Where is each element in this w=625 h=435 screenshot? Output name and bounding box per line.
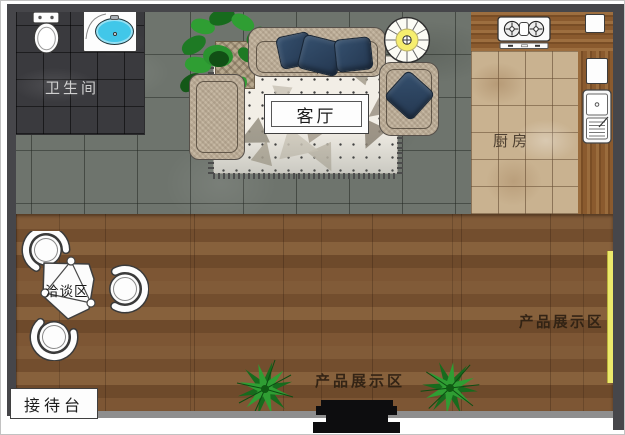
sink-drain [113, 32, 117, 36]
kitchen-sink-icon [582, 89, 612, 145]
spiral-staircase-icon [383, 16, 431, 64]
sofa-pillow-3 [333, 36, 373, 73]
product-display-bottom-label: 产品展示区 [315, 370, 405, 391]
counter-appliance-top [585, 14, 605, 33]
cutting-board [586, 58, 608, 84]
product-display-right-label: 产品展示区 [519, 311, 604, 332]
floor-plan-canvas: 卫生间 [0, 0, 625, 435]
wall-right [613, 4, 624, 430]
toilet-icon [31, 9, 63, 57]
wall-bottom [16, 411, 613, 418]
living-room-label: 客厅 [297, 102, 337, 127]
armchair-left [189, 74, 245, 160]
reception-desk-box: 接待台 [10, 388, 98, 419]
stove-icon [496, 15, 552, 51]
wall-top [7, 4, 624, 12]
reception-desk-label: 接待台 [24, 392, 84, 416]
bathroom-label: 卫生间 [45, 77, 99, 98]
rug-fringe-bottom [213, 173, 398, 179]
kitchen-label: 厨房 [493, 130, 531, 151]
negotiation-area-label: 洽谈区 [45, 280, 89, 300]
wall-left [7, 4, 16, 416]
faucet-icon [110, 15, 119, 20]
living-room-label-box: 客厅 [264, 94, 369, 134]
